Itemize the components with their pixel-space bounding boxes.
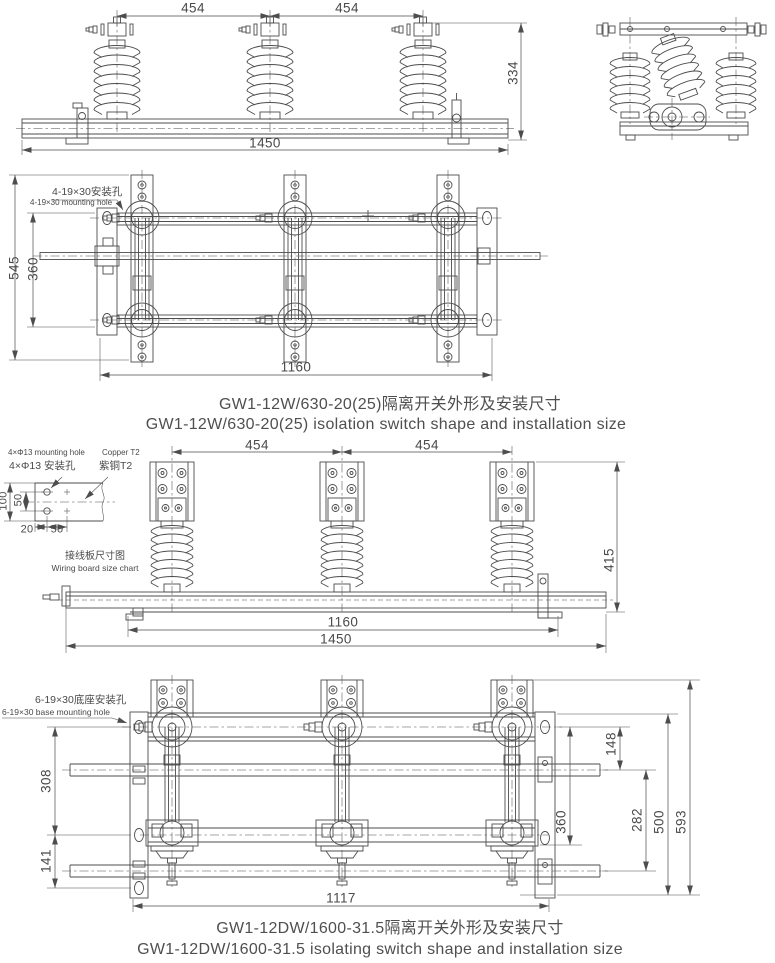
dim-label-pole-spacing-right-1600: 454 <box>415 438 439 452</box>
mounting-hole-note-cn-630: 4-19×30安装孔 <box>52 187 122 198</box>
dim-label-lower-1600: 141 <box>39 849 53 873</box>
mounting-hole-note-en-630: 4-19×30 mounting hole <box>30 199 112 207</box>
dim-label-pole-spacing-left-630: 454 <box>181 1 205 15</box>
dim-label-rod-span-1600: 282 <box>630 808 644 832</box>
drawing-sheet: 454 454 334 1450 4-19×30安装孔 4-19×30 moun… <box>0 0 775 963</box>
dim-label-depth-1600: 593 <box>674 810 688 834</box>
dim-label-board-edge: 20 <box>21 525 34 536</box>
dim-label-width-1600: 1450 <box>320 632 352 646</box>
dim-label-rail-span-630: 360 <box>26 257 40 281</box>
dim-label-board-hole-v: 50 <box>14 494 25 507</box>
dim-label-frame-1600: 500 <box>652 810 666 834</box>
terminal-board-caption-en: Wiring board size chart <box>52 564 139 573</box>
dim-label-rod-gap-1600: 148 <box>604 732 618 756</box>
dim-label-width-plan-1600: 1117 <box>326 891 356 905</box>
terminal-board-note-cn-material: 紫铜T2 <box>99 461 132 472</box>
dim-label-pole-spacing-left-1600: 454 <box>245 438 269 452</box>
dim-label-width-630: 1450 <box>249 136 281 150</box>
view-front-630 <box>16 10 527 155</box>
dim-label-height-1600: 415 <box>602 548 616 572</box>
caption-model-630-cn: GW1-12W/630-20(25)隔离开关外形及安装尺寸 <box>219 397 561 413</box>
base-hole-note-en-1600: 6-19×30 base mounting hole <box>2 708 110 717</box>
dim-label-pole-spacing-right-630: 454 <box>335 1 359 15</box>
dim-label-board-hole-h: 50 <box>51 525 64 536</box>
dim-label-height-630: 334 <box>506 61 520 85</box>
dim-label-mount-width-630: 1160 <box>281 360 312 374</box>
terminal-board-note-en-material: Copper T2 <box>102 449 140 457</box>
caption-model-1600-cn: GW1-12DW/1600-31.5隔离开关外形及安装尺寸 <box>216 921 563 937</box>
dim-label-mount-width-1600: 1160 <box>328 615 359 629</box>
dim-label-bearing-span-1600: 360 <box>554 810 568 834</box>
terminal-board-note-cn-hole: 4×Φ13 安装孔 <box>9 461 75 472</box>
dim-label-board-height: 100 <box>0 491 10 510</box>
view-side-630 <box>597 17 766 140</box>
base-hole-note-cn-1600: 6-19×30底座安装孔 <box>35 695 126 706</box>
dim-label-upper-1600: 308 <box>39 769 53 793</box>
terminal-board-caption-cn: 接线板尺寸图 <box>65 552 125 562</box>
caption-model-1600-en: GW1-12DW/1600-31.5 isolating switch shap… <box>137 942 623 958</box>
dim-label-depth-630: 545 <box>7 256 21 280</box>
caption-model-630-en: GW1-12W/630-20(25) isolation switch shap… <box>146 417 626 433</box>
terminal-board-note-en-hole: 4×Φ13 mounting hole <box>8 449 85 457</box>
